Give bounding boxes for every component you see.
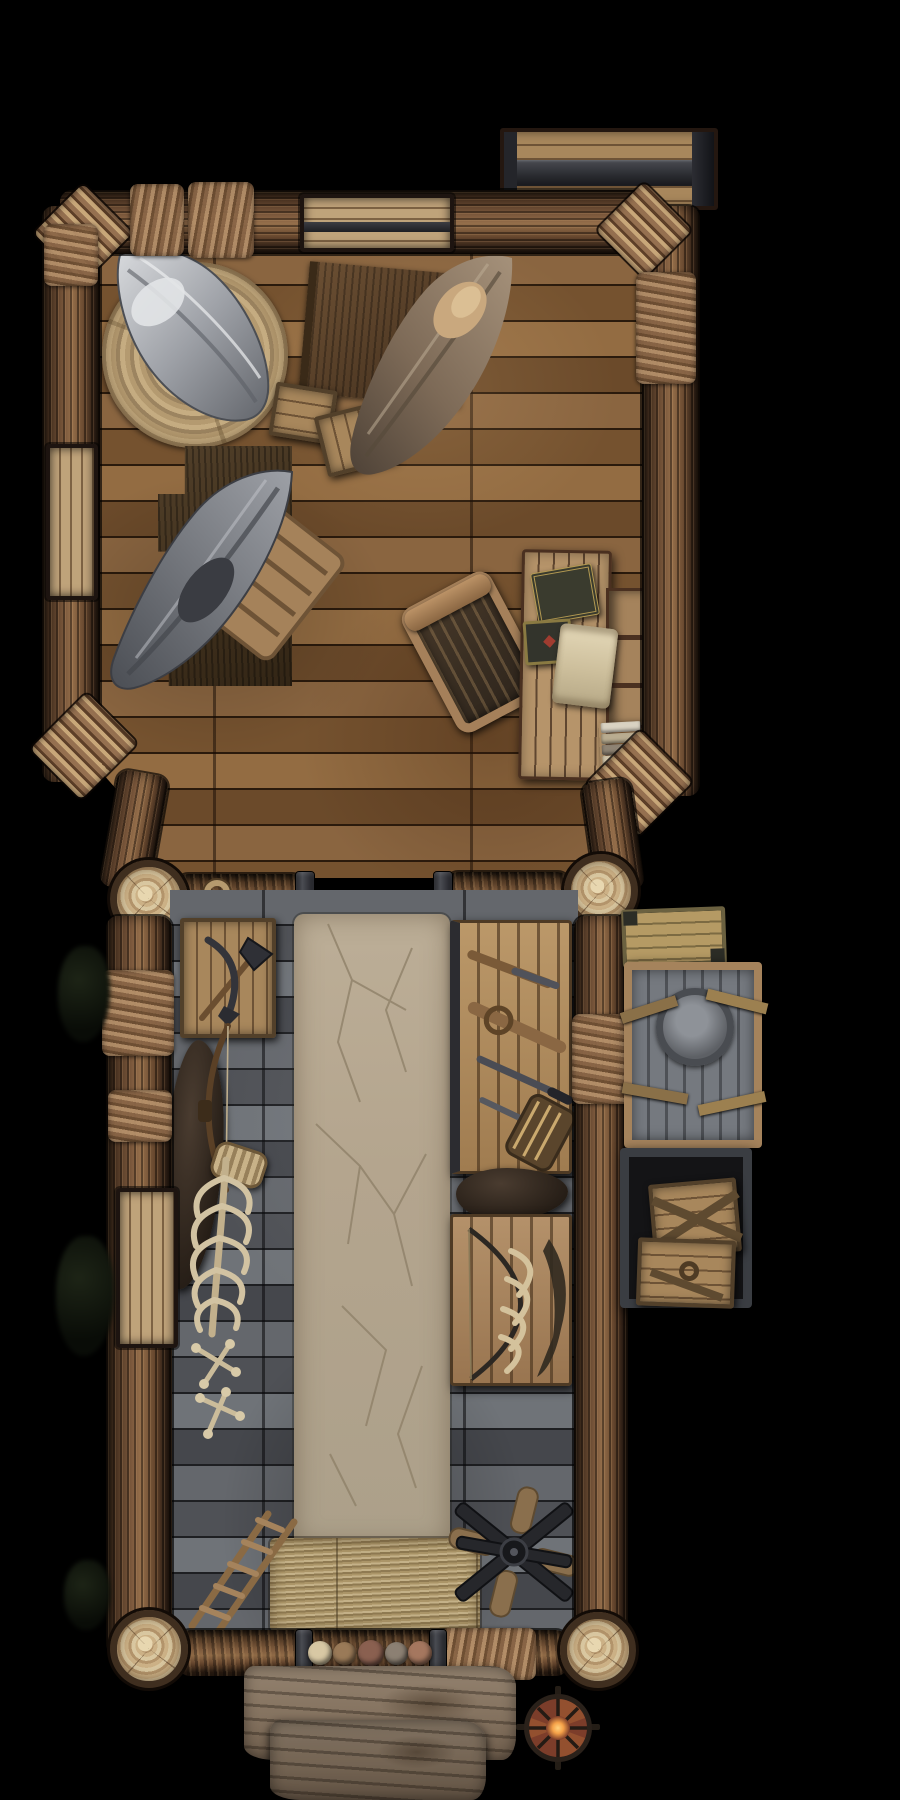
crate-strap [622,1082,689,1104]
bone-pile [186,1332,250,1442]
bone-table-lower [450,1214,572,1386]
broken-ladder [176,1498,300,1634]
weapons-icon [450,920,582,1180]
entry-stone [385,1642,408,1665]
rope-lashing [102,970,174,1056]
rope-lashing [44,224,98,286]
round-shield-lantern [522,1692,594,1764]
crate-iron-endcap-right [692,132,714,206]
rope-lashing [130,184,184,256]
entry-stone [333,1642,356,1665]
pallet-crate-ring [636,1237,736,1308]
crate-bracket [623,911,637,925]
porch-step-lower [270,1720,486,1800]
weapon-table-upper [450,920,572,1174]
log-post-bottom-right [560,1612,636,1688]
crate-bracket [710,948,724,962]
rope-lashing [108,1090,172,1142]
hammock-gray-2 [102,462,322,694]
shelf-divider-2 [609,683,645,688]
shelf-iron-band [304,222,450,232]
crate-pallet [620,1148,752,1308]
crate-strap [698,1091,767,1116]
gray-emblem-crate [624,962,762,1148]
book-dark-gold [530,563,600,625]
entry-stone [358,1640,384,1666]
bow-and-ribs-icon [453,1217,575,1389]
rope-lashing [188,182,254,258]
rope-lashing [636,272,696,384]
log-post-bottom-left [110,1610,188,1688]
book-gem [543,635,556,648]
bush [64,1560,110,1630]
entry-stone [408,1641,432,1665]
rib-cage [172,1150,268,1346]
hall-left-wall-shelf [116,1188,178,1348]
top-wall-shelf [300,194,454,252]
hammock-gray-1 [88,228,288,433]
parchment-scroll [551,623,618,709]
fallen-fan-rotor [444,1474,584,1624]
hammock-brown [338,242,528,482]
clay-path [294,914,450,1546]
entry-stones [308,1638,434,1668]
strapped-olive-crate [621,906,727,968]
crate-iron-band [504,160,714,186]
battlemap-root [0,0,900,1800]
path-cracks [294,914,450,1546]
entry-stone [308,1641,332,1665]
left-wall-shelf [46,444,98,600]
